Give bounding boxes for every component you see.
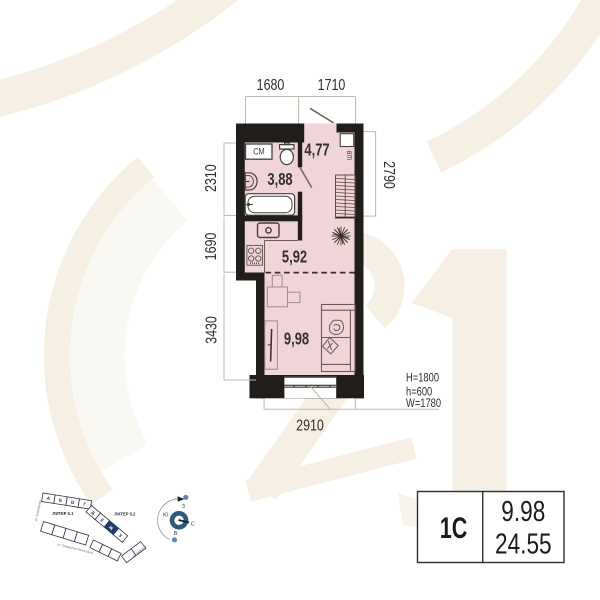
svg-text:1710: 1710: [318, 77, 346, 95]
svg-text:24.55: 24.55: [495, 527, 552, 560]
svg-text:9.98: 9.98: [501, 494, 545, 527]
svg-text:С: С: [191, 521, 195, 527]
svg-text:Ю: Ю: [163, 512, 169, 518]
svg-text:В: В: [174, 531, 178, 537]
svg-text:ЛИТЕР 5.1: ЛИТЕР 5.1: [53, 511, 74, 516]
svg-text:2790: 2790: [380, 161, 398, 189]
svg-text:ул. Тридцатая Магистраль: ул. Тридцатая Магистраль: [57, 542, 94, 555]
svg-text:3430: 3430: [203, 316, 221, 344]
svg-text:H=1800: H=1800: [406, 371, 439, 384]
svg-text:5,92: 5,92: [282, 247, 307, 267]
svg-text:З: З: [182, 504, 185, 510]
svg-text:4,77: 4,77: [304, 141, 329, 161]
svg-text:1С: 1С: [440, 510, 468, 544]
svg-text:ШВ: ШВ: [348, 151, 354, 161]
svg-text:ЛИТЕР 5.2: ЛИТЕР 5.2: [115, 511, 136, 516]
svg-text:2310: 2310: [203, 164, 221, 192]
svg-text:ул. Заполярная: ул. Заполярная: [34, 499, 42, 521]
svg-text:СМ: СМ: [253, 146, 264, 157]
svg-text:9,98: 9,98: [284, 329, 309, 349]
svg-text:2910: 2910: [296, 417, 324, 435]
svg-text:1680: 1680: [257, 77, 285, 95]
svg-text:W=1780: W=1780: [406, 397, 441, 410]
svg-text:1690: 1690: [203, 233, 221, 261]
svg-text:3,88: 3,88: [267, 170, 292, 190]
